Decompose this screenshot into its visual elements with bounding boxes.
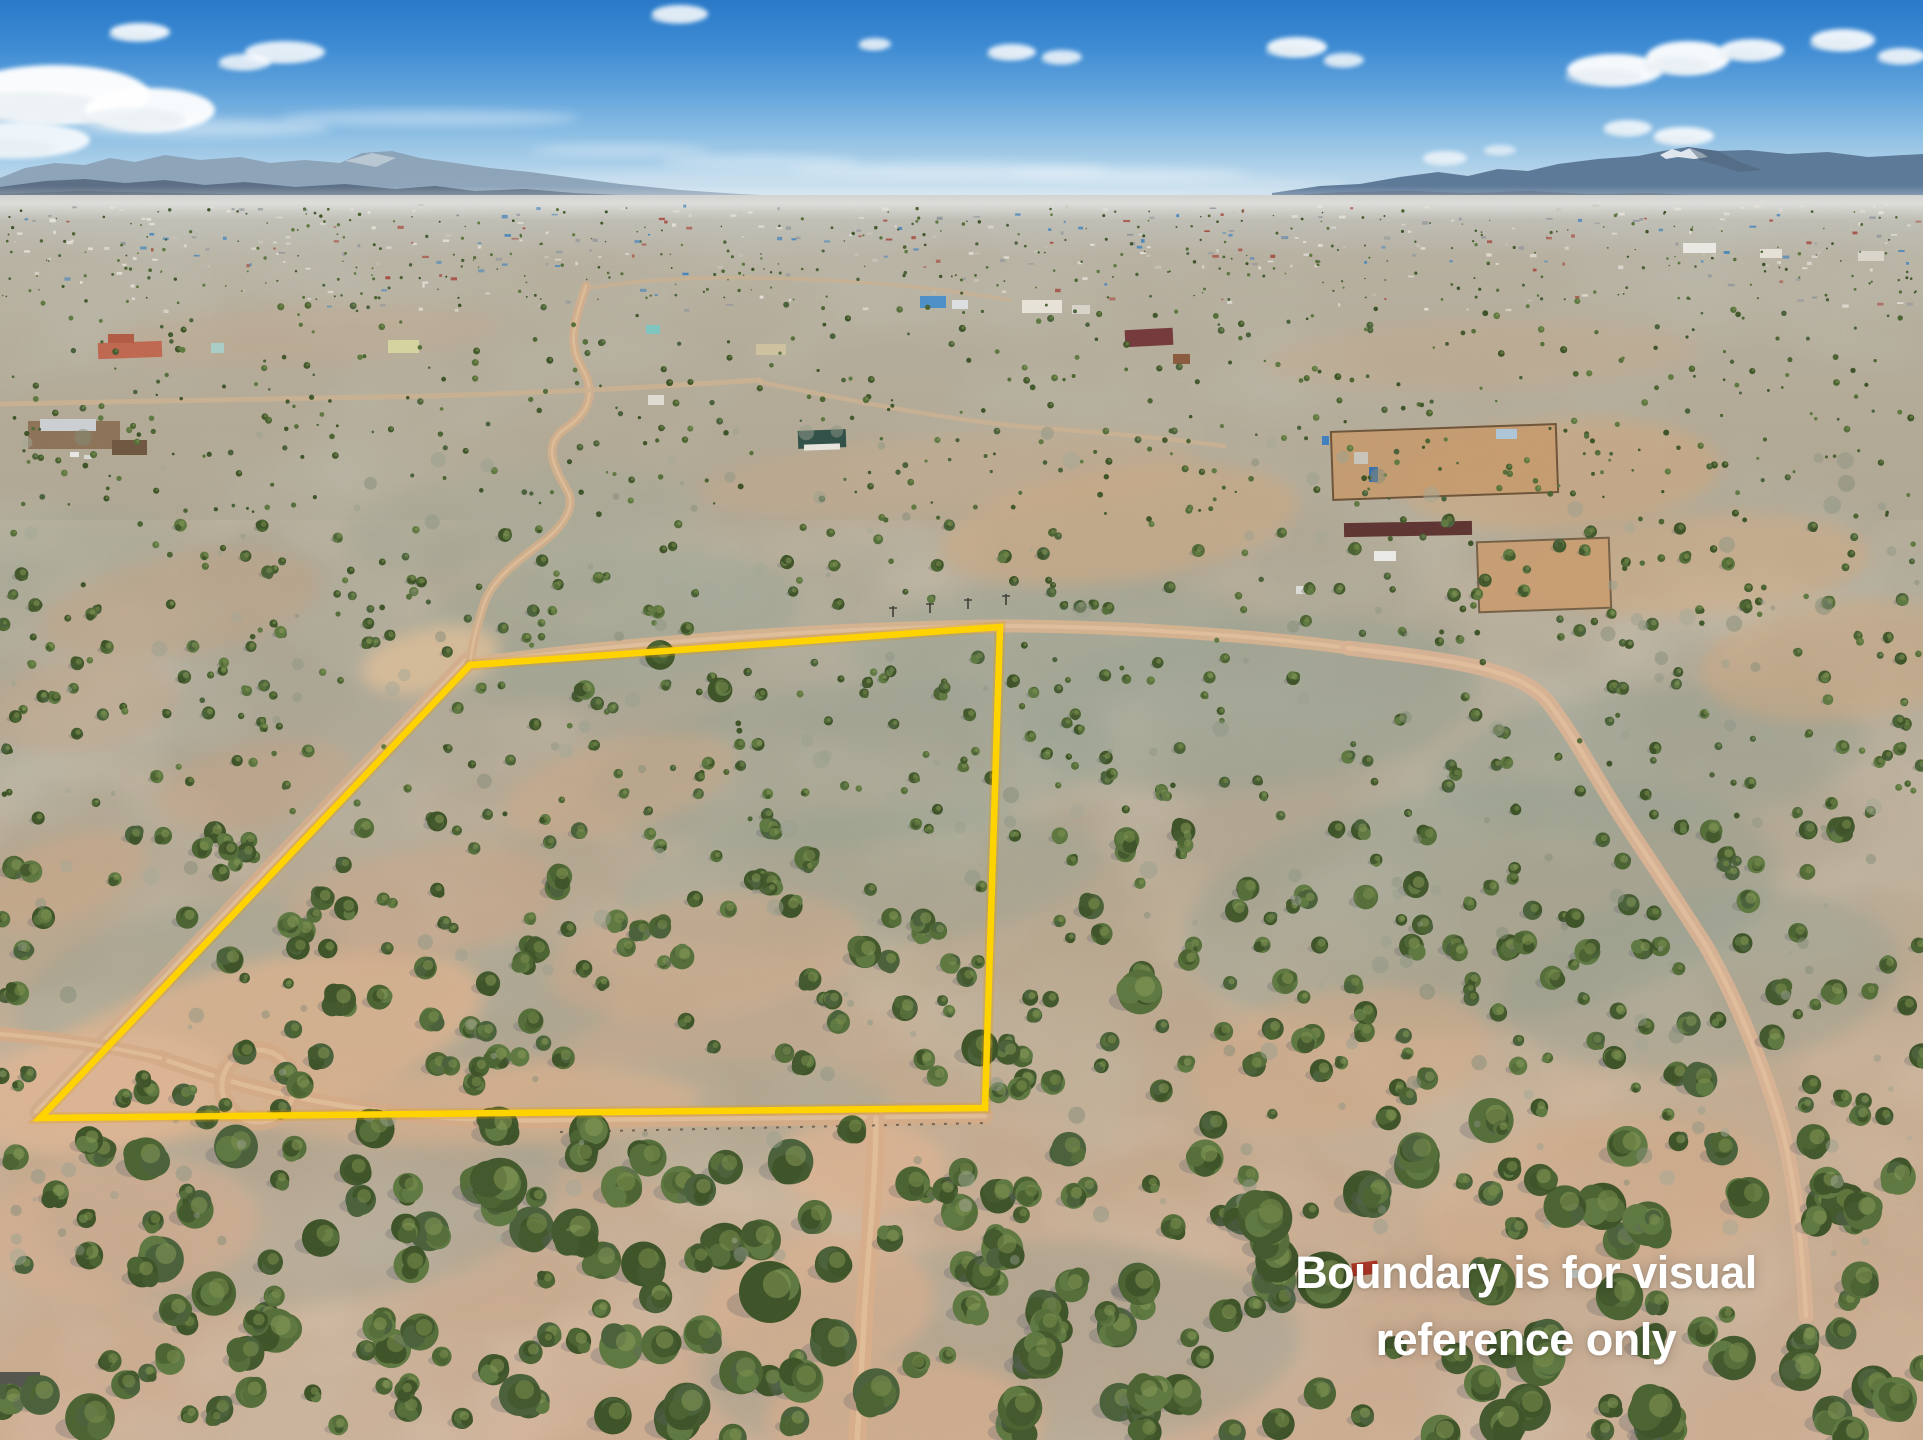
aerial-photo-stage: Boundary is for visual reference only <box>0 0 1923 1440</box>
caption: Boundary is for visual reference only <box>1295 1240 1757 1373</box>
caption-line-2: reference only <box>1295 1307 1757 1374</box>
aerial-photo <box>0 0 1923 1440</box>
caption-line-1: Boundary is for visual <box>1295 1240 1757 1307</box>
